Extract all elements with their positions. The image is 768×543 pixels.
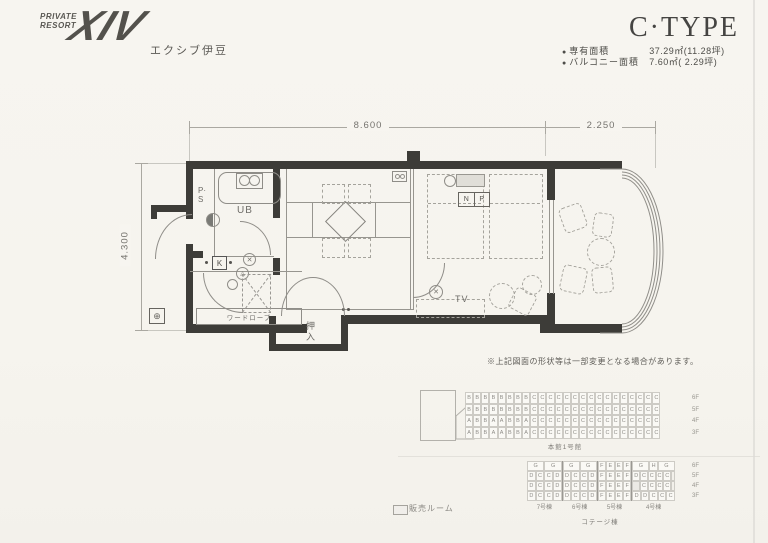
room-cell: F: [598, 461, 606, 471]
balcony-table: [587, 238, 615, 266]
section-label: 5号棟: [598, 502, 632, 511]
legend-swatch: [393, 505, 408, 515]
room-cell: C: [579, 392, 587, 404]
dim-width-balcony: 2.250: [580, 120, 622, 131]
room-cell: C: [571, 491, 579, 501]
room-cell: C: [555, 392, 563, 404]
room-cell: B: [489, 404, 497, 416]
dot-icon: [205, 261, 208, 264]
control-dot: [400, 174, 405, 179]
room-cell: C: [620, 392, 628, 404]
room-cell: C: [555, 404, 563, 416]
room-cell: C: [656, 481, 664, 491]
room-cell: C: [546, 404, 554, 416]
meter-box-icon: ⊕: [149, 308, 165, 324]
room-cell: C: [628, 404, 636, 416]
spec-balcony-row: ● バルコニー面積 7.60㎡( 2.29坪): [562, 55, 717, 68]
cottage-section: GHGDCCCCCCCCDDCCC4号棟: [631, 461, 675, 501]
room-cell: C: [563, 392, 571, 404]
room-cell: C: [536, 491, 545, 501]
room-cell: A: [489, 427, 497, 439]
room-cell: B: [498, 392, 506, 404]
room-cell: E: [606, 491, 614, 501]
dim-extension: [189, 128, 190, 162]
balcony-chair: [591, 212, 614, 239]
room-cell: E: [615, 461, 623, 471]
bullet-icon: ●: [562, 60, 566, 67]
room-cell: C: [571, 415, 579, 427]
room-cell: C: [612, 427, 620, 439]
room-cell: E: [615, 491, 623, 501]
room-cell: D: [632, 491, 641, 501]
main-building-label: 本館1号館: [500, 441, 630, 451]
room-cell: G: [527, 461, 544, 471]
floor-label: 5F: [692, 404, 699, 416]
wall-segment: [186, 324, 307, 333]
room-cell: C: [636, 404, 644, 416]
bed: [489, 174, 543, 259]
room-cell: C: [603, 404, 611, 416]
spec-balcony-label: バルコニー面積: [569, 55, 649, 68]
room-cell: C: [536, 481, 545, 491]
room-cell: C: [587, 415, 595, 427]
room-cell: C: [636, 392, 644, 404]
room-cell: B: [506, 415, 514, 427]
section-label: 7号棟: [527, 502, 562, 511]
room-cell: C: [620, 427, 628, 439]
narrow-cell: [671, 471, 675, 481]
floor-label: 4F: [692, 415, 699, 427]
room-cell: B: [473, 404, 481, 416]
cottage-label: コテージ棟: [560, 516, 640, 526]
room-cell: C: [544, 481, 553, 491]
room-cell: B: [473, 427, 481, 439]
dot-icon: [229, 261, 232, 264]
room-cell: C: [628, 427, 636, 439]
room-cell: C: [595, 392, 603, 404]
oshiire-label: 押入: [306, 321, 317, 343]
room-cell: C: [612, 404, 620, 416]
room-cell: D: [588, 471, 596, 481]
room-cell: C: [652, 392, 660, 404]
room-cell: C: [603, 427, 611, 439]
room-cell: G: [632, 461, 649, 471]
room-cell: C: [546, 392, 554, 404]
room-cell: C: [538, 392, 546, 404]
room-cell: C: [544, 491, 553, 501]
room-cell: C: [612, 392, 620, 404]
wall-segment: [547, 169, 555, 200]
light-fixture-icon: ✕: [429, 285, 443, 299]
wall-segment: [186, 161, 555, 169]
room-cell: C: [544, 471, 553, 481]
dot-icon: [347, 308, 350, 311]
room-cell: A: [498, 427, 506, 439]
room-cell: C: [648, 481, 656, 491]
room-cell: C: [579, 404, 587, 416]
page-title: C·TYPE: [604, 12, 764, 44]
room-cell: C: [595, 427, 603, 439]
cottage-floor-labels: 6F5F4F3F: [692, 461, 699, 501]
wall-segment: [186, 258, 193, 333]
cottage-section: FEEFFEEFFEEFFEEF5号棟: [597, 461, 632, 501]
room-cell: A: [498, 415, 506, 427]
balcony-chair: [558, 264, 588, 296]
room-cell: B: [506, 392, 514, 404]
floor-label: 6F: [692, 392, 699, 404]
room-cell: D: [553, 481, 562, 491]
room-cell: D: [563, 471, 571, 481]
room-cell: C: [649, 491, 658, 501]
room-cell: C: [563, 427, 571, 439]
room-cell: C: [587, 427, 595, 439]
room-cell: C: [658, 491, 667, 501]
room-cell: B: [481, 415, 489, 427]
panel-p-label: P: [475, 193, 490, 206]
washbasin-icon: [206, 213, 220, 227]
dim-extension: [545, 128, 546, 156]
room-cell: C: [571, 471, 579, 481]
room-cell: A: [465, 415, 473, 427]
room-cell: C: [571, 404, 579, 416]
room-cell: B: [506, 427, 514, 439]
floor-label: 5F: [692, 471, 699, 481]
dim-extension: [142, 330, 186, 331]
room-cell: C: [555, 415, 563, 427]
lamp-icon: [444, 175, 456, 187]
room-cell: C: [530, 427, 538, 439]
room-cell: E: [606, 471, 614, 481]
room-cell: B: [522, 392, 530, 404]
room-cell: C: [538, 427, 546, 439]
room-cell: C: [644, 427, 652, 439]
nightstand: [456, 174, 485, 187]
room-cell: E: [615, 481, 623, 491]
room-cell: B: [514, 392, 522, 404]
room-cell: C: [636, 427, 644, 439]
building-outline: [420, 390, 456, 441]
room-cell: C: [587, 404, 595, 416]
room-cell: C: [628, 415, 636, 427]
narrow-cell: [671, 481, 675, 491]
room-cell: C: [538, 404, 546, 416]
room-cell: C: [666, 491, 675, 501]
room-cell: C: [595, 404, 603, 416]
floor-cushion: [322, 238, 345, 258]
wall-control-icon: [392, 171, 407, 182]
logo-private: PRIVATE: [40, 12, 77, 21]
balcony-chair: [591, 266, 615, 294]
room-cell: C: [640, 471, 648, 481]
section-label: 6号棟: [563, 502, 597, 511]
room-cell: C: [555, 427, 563, 439]
wall-segment: [151, 205, 157, 219]
room-cell: D: [588, 481, 596, 491]
floor-label: 4F: [692, 481, 699, 491]
room-cell: C: [579, 415, 587, 427]
room-cell: C: [530, 415, 538, 427]
brand-logo: XIV: [62, 2, 152, 50]
room-cell: C: [546, 427, 554, 439]
room-cell: C: [648, 471, 656, 481]
room-cell: E: [606, 461, 614, 471]
main-floor-labels: 6F5F4F3F: [692, 392, 699, 439]
logo-subtitle: エクシブ伊豆: [150, 42, 228, 58]
room-cell: D: [527, 471, 536, 481]
rule-line: [398, 456, 760, 457]
room-cell: C: [644, 404, 652, 416]
entry-door-arc: [155, 214, 192, 259]
room-cell: C: [644, 415, 652, 427]
room-cell: F: [623, 481, 631, 491]
room-cell: C: [595, 415, 603, 427]
balcony-chair: [557, 202, 588, 235]
room-cell: B: [522, 404, 530, 416]
room-cell: D: [553, 491, 562, 501]
hall-door-arc: [203, 273, 243, 313]
room-cell: C: [546, 415, 554, 427]
balcony-sliding-door: [549, 200, 550, 294]
circle-plus-glyph: ⊕: [153, 311, 161, 322]
room-cell: A: [489, 415, 497, 427]
balcony-sliding-door: [553, 200, 554, 294]
room-cell: C: [620, 404, 628, 416]
room-cell: B: [481, 392, 489, 404]
room-cell: D: [588, 491, 596, 501]
dim-height-left: 4.300: [120, 225, 131, 267]
room-cell: F: [598, 491, 606, 501]
room-cell: B: [514, 415, 522, 427]
bed-line: [490, 203, 540, 205]
room-cell: C: [536, 471, 545, 481]
table-diamond: [325, 201, 366, 242]
room-cell: C: [580, 471, 588, 481]
wall-segment: [151, 205, 193, 212]
room-cell: G: [544, 461, 561, 471]
sliding-partition: [410, 169, 411, 310]
room-cell: F: [623, 491, 631, 501]
floor-label: 3F: [692, 491, 699, 501]
room-cell: F: [598, 471, 606, 481]
cottage-section: GGDCCDDCCDDCCD6号棟: [562, 461, 597, 501]
unit-bath-label: UB: [237, 205, 253, 216]
room-cell: C: [530, 392, 538, 404]
room-cell: B: [481, 427, 489, 439]
main-building-grid: BBBBBBBBCCCCCCCCCCCCCCCCBBBBBBBBCCCCCCCC…: [465, 392, 660, 439]
disclaimer-note: ※上記図面の形状等は一部変更となる場合があります。: [487, 356, 698, 367]
pipe-space-label: P·S: [198, 186, 206, 204]
tatami-room-edge: [286, 169, 287, 310]
room-cell: C: [538, 415, 546, 427]
room-cell: F: [623, 471, 631, 481]
room-cell: C: [663, 471, 671, 481]
room-cell: C: [580, 481, 588, 491]
sink-bowl: [249, 175, 260, 186]
room-cell: F: [598, 481, 606, 491]
room-cell: G: [658, 461, 675, 471]
scanned-floorplan-page: PRIVATE RESORT XIV エクシブ伊豆 C·TYPE ● 専有面積 …: [0, 0, 768, 543]
room-cell: D: [563, 491, 571, 501]
room-cell: H: [649, 461, 658, 471]
room-cell: C: [620, 415, 628, 427]
panel-n-label: N: [459, 193, 475, 206]
room-cell: A: [522, 427, 530, 439]
scan-edge: [753, 0, 755, 543]
room-cell: C: [628, 392, 636, 404]
room-cell: C: [663, 481, 671, 491]
room-cell: C: [530, 404, 538, 416]
room-cell: B: [498, 404, 506, 416]
tv-cabinet: [416, 299, 485, 318]
floor-label: 6F: [692, 461, 699, 471]
room-cell: [632, 481, 640, 491]
section-label: 4号棟: [632, 502, 675, 511]
room-cell: D: [553, 471, 562, 481]
cross-glyph: ✕: [247, 256, 253, 264]
room-cell: C: [652, 404, 660, 416]
cottage-section: GGDCCDDCCDDCCD7号棟: [527, 461, 562, 501]
cottage-grid: GGDCCDDCCDDCCD7号棟GGDCCDDCCDDCCD6号棟FEEFFE…: [527, 461, 675, 501]
room-cell: C: [571, 392, 579, 404]
room-cell: C: [571, 481, 579, 491]
room-cell: B: [514, 404, 522, 416]
room-cell: C: [563, 404, 571, 416]
legend-label: 販売ルーム: [409, 503, 454, 514]
room-cell: C: [640, 481, 648, 491]
dimension-line-left: [141, 163, 142, 331]
cross-glyph: ✕: [433, 288, 439, 296]
room-cell: B: [514, 427, 522, 439]
room-cell: B: [473, 392, 481, 404]
room-cell: E: [615, 471, 623, 481]
wall-segment: [269, 344, 348, 351]
chair: [522, 275, 542, 295]
room-cell: B: [465, 404, 473, 416]
floor-cushion: [322, 184, 345, 204]
room-cell: D: [632, 471, 640, 481]
room-cell: A: [522, 415, 530, 427]
room-cell: C: [571, 427, 579, 439]
closet-door-arc: [313, 277, 345, 316]
room-cell: C: [652, 427, 660, 439]
room-cell: G: [563, 461, 580, 471]
nightstand-panel: N P: [458, 192, 490, 207]
floor-cushion: [348, 184, 371, 204]
room-cell: D: [563, 481, 571, 491]
wall-pillar: [407, 151, 420, 162]
spec-balcony-value: 7.60㎡( 2.29坪): [649, 55, 717, 68]
room-cell: C: [612, 415, 620, 427]
room-cell: B: [473, 415, 481, 427]
room-cell: C: [563, 415, 571, 427]
kitchen-label-box: K: [212, 256, 227, 270]
kitchen-label: K: [217, 259, 222, 268]
floor-label: 3F: [692, 427, 699, 439]
dim-extension: [142, 163, 186, 164]
room-cell: F: [623, 461, 631, 471]
room-cell: G: [580, 461, 597, 471]
room-cell: C: [579, 427, 587, 439]
dim-width-main: 8.600: [347, 120, 389, 131]
room-cell: B: [506, 404, 514, 416]
wall-segment: [547, 293, 555, 317]
wall-segment: [273, 258, 280, 275]
tatami-mat-line: [312, 202, 313, 238]
mirror-stand-box: [242, 274, 271, 313]
room-cell: B: [481, 404, 489, 416]
tatami-mat-line: [375, 202, 376, 238]
room-cell: B: [465, 392, 473, 404]
tv-label: TV: [455, 294, 469, 304]
room-cell: C: [636, 415, 644, 427]
room-cell: C: [603, 392, 611, 404]
room-cell: C: [603, 415, 611, 427]
floor-cushion: [348, 238, 371, 258]
room-cell: E: [606, 481, 614, 491]
room-cell: C: [580, 491, 588, 501]
room-cell: C: [644, 392, 652, 404]
room-cell: D: [527, 481, 536, 491]
room-cell: D: [641, 491, 650, 501]
room-cell: A: [465, 427, 473, 439]
room-cell: C: [652, 415, 660, 427]
room-cell: C: [656, 471, 664, 481]
room-cell: B: [489, 392, 497, 404]
room-cell: C: [587, 392, 595, 404]
room-cell: D: [527, 491, 536, 501]
bath-door-arc: [240, 221, 271, 255]
